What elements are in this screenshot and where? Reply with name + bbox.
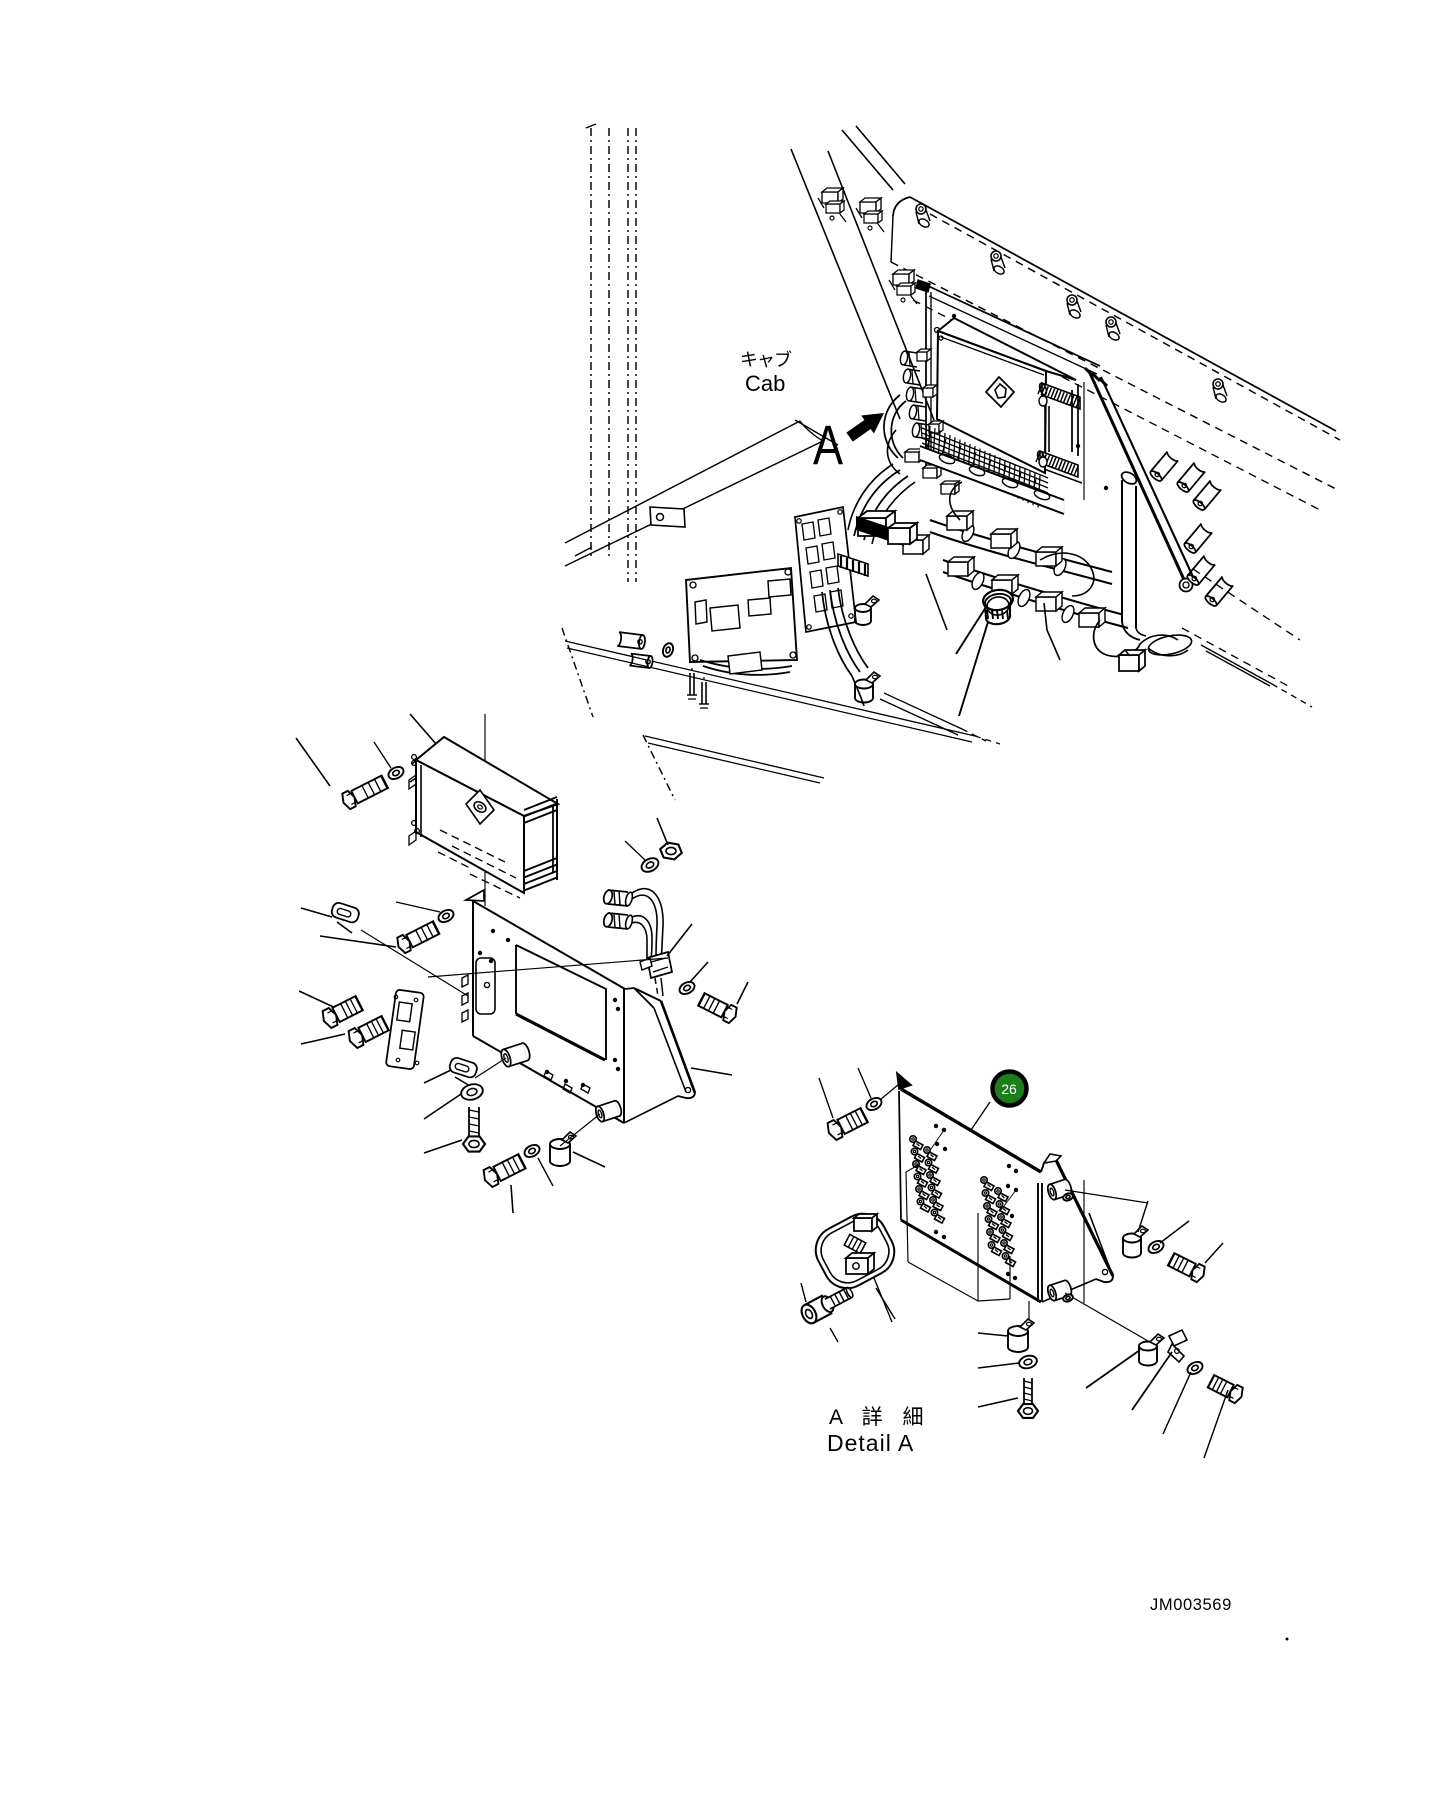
svg-text:A 詳 細: A 詳 細 (829, 1406, 931, 1429)
svg-text:Cab: Cab (745, 371, 785, 396)
svg-text:キャブ: キャブ (740, 349, 792, 370)
svg-text:JM003569: JM003569 (1150, 1596, 1232, 1614)
svg-text:Detail A: Detail A (827, 1430, 914, 1456)
svg-text:26: 26 (1001, 1081, 1017, 1097)
svg-text:A: A (813, 413, 844, 476)
